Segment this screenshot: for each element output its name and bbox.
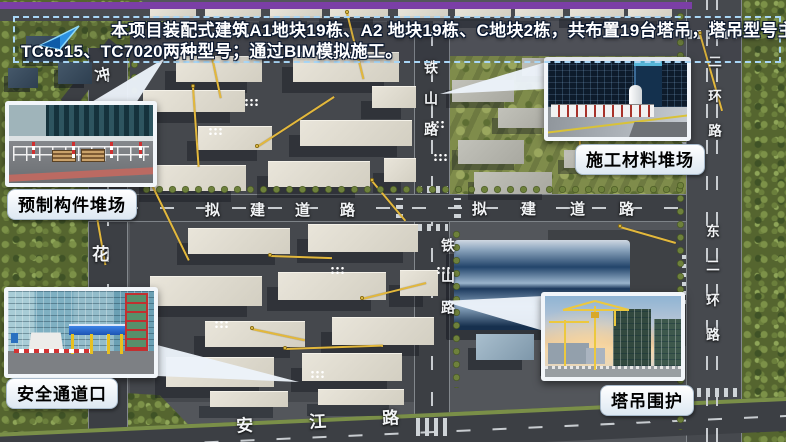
crane-position-dot <box>370 178 374 182</box>
city-building <box>58 62 92 84</box>
scene-road-corner <box>629 122 687 137</box>
city-building <box>8 68 38 88</box>
building-block <box>268 161 370 187</box>
scene-low-building <box>9 105 46 139</box>
rooftop-dot-cluster <box>310 370 324 379</box>
crane-position-dot <box>250 326 254 330</box>
top-purple-bar <box>0 2 692 9</box>
project-info-banner: 本项目装配式建筑A1地块19栋、A2 地块19栋、C地块2栋，共布置19台塔吊，… <box>13 16 781 63</box>
crane-position-dot <box>345 10 349 14</box>
crane-position-dot <box>255 144 259 148</box>
scene-canopy-leg <box>120 334 123 354</box>
gray-building <box>452 80 514 102</box>
label-material-yard: 施工材料堆场 <box>575 144 705 175</box>
label-safety-passage: 安全通道口 <box>6 378 118 409</box>
building-block <box>300 120 412 146</box>
rooftop-dot-cluster <box>433 153 447 162</box>
callout-safety-passage-photo <box>4 287 158 378</box>
label-precast-yard: 预制构件堆场 <box>7 189 137 220</box>
callout-precast-yard-photo <box>5 101 157 187</box>
building-block <box>372 86 416 108</box>
building-block <box>308 224 418 252</box>
gray-building <box>458 140 524 164</box>
road-label-proposed-right: 拟建道路 <box>472 198 668 219</box>
scene-ground <box>8 351 154 374</box>
building-block <box>332 317 434 345</box>
callout-material-yard-photo <box>544 57 691 141</box>
bim-site-plan-slide: 拟建道路 拟建道路 铁山路 铁山路 东二环路 东二环路 花 冲 安江路 <box>0 0 786 442</box>
road-label-proposed-left: 拟建道路 <box>205 199 385 220</box>
street-tree-line <box>140 185 686 194</box>
scene-hoist-frame <box>125 293 148 351</box>
crane-position-dot <box>618 224 622 228</box>
crane-position-dot <box>191 84 195 88</box>
precast-yard-scene <box>9 105 153 183</box>
crosswalk <box>418 224 448 231</box>
road-label-tieshan-upper: 铁山路 <box>421 60 441 153</box>
crosswalk <box>454 198 461 218</box>
building-block <box>384 158 416 182</box>
material-yard-scene <box>548 61 687 137</box>
building-block <box>188 228 290 254</box>
greenbelt-right <box>742 0 786 442</box>
building-block <box>166 357 274 387</box>
crane-position-dot <box>283 346 287 350</box>
rooftop-dot-cluster <box>330 266 344 275</box>
banner-text-line1: 本项目装配式建筑A1地块19栋、A2 地块19栋、C地块2栋，共布置19台塔吊，… <box>15 20 779 41</box>
blue-annex-building <box>476 334 534 360</box>
banner-text-line2: TC6515、TC7020两种型号；通过BIM模拟施工。 <box>15 41 779 62</box>
safety-passage-scene <box>8 291 154 374</box>
road-label-hua: 花 <box>92 240 109 265</box>
rooftop-dot-cluster <box>214 320 228 329</box>
crosswalk <box>688 388 740 397</box>
scene-post <box>110 142 113 158</box>
crane-position-dot <box>360 296 364 300</box>
scene-canopy-leg <box>107 334 110 354</box>
scene-post <box>32 142 35 158</box>
road-label-ring-lower: 东二环路 <box>701 224 721 362</box>
scene-canopy-roof <box>69 324 124 335</box>
scene-stalls <box>551 104 654 117</box>
scene-sign <box>11 333 18 343</box>
rooftop-dot-cluster <box>208 127 222 136</box>
building-block <box>150 276 262 306</box>
scene-barrier <box>14 349 90 353</box>
crane-position-dot <box>268 253 272 257</box>
label-crane-enclosure: 塔吊围护 <box>600 385 694 416</box>
road-label-tieshan-lower: 铁山路 <box>438 238 458 331</box>
tower-cranes-icon <box>545 296 681 377</box>
pointer-arrow-icon <box>39 25 81 51</box>
scene-canopy-leg <box>90 334 93 354</box>
scene-post <box>72 142 75 158</box>
callout-crane-enclosure-photo <box>541 292 685 381</box>
building-block <box>210 391 288 407</box>
scene-post <box>139 142 142 158</box>
rooftop-dot-cluster <box>244 98 258 107</box>
crane-enclosure-scene <box>545 296 681 377</box>
scene-stack <box>81 149 105 162</box>
